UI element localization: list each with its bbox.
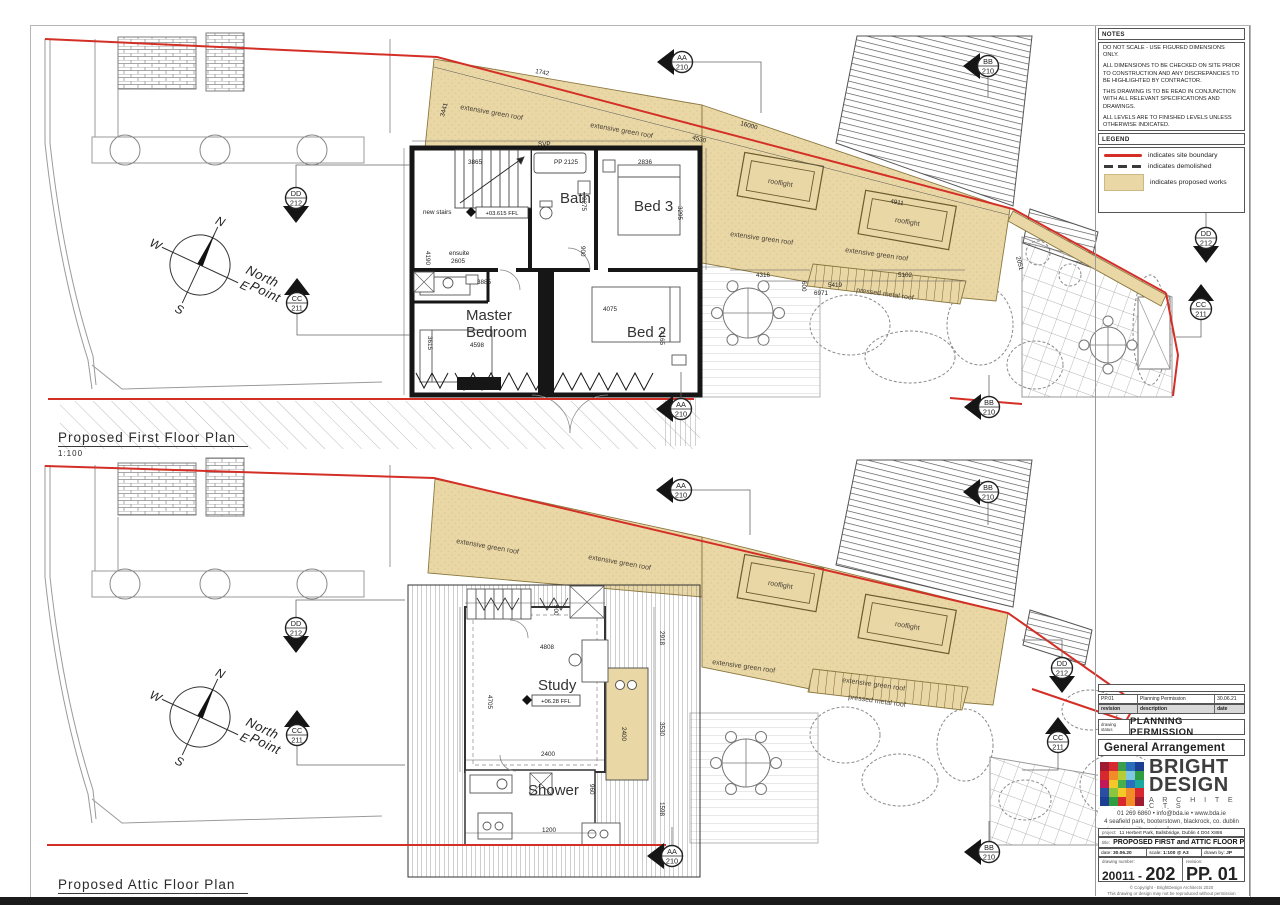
drawing-number-cell: drawing number: 20011 - 202 xyxy=(1099,858,1183,881)
svg-text:212: 212 xyxy=(290,199,302,208)
note-line: ALL DIMENSIONS TO BE CHECKED ON SITE PRI… xyxy=(1103,63,1240,85)
note-line: ALL LEVELS ARE TO FINISHED LEVELS UNLESS… xyxy=(1103,115,1240,130)
plan-scale: 1:100 xyxy=(58,449,248,458)
north-point-compass-attic: N S W E North Point xyxy=(127,644,284,791)
svg-text:4075: 4075 xyxy=(603,306,618,313)
section-marker-bb-bottom: BB210 xyxy=(964,839,1000,865)
svg-text:CC: CC xyxy=(1053,733,1064,742)
first-floor-plan-drawing: +03.615 FFL 3865 SVP PP 2125 2836 2275 3… xyxy=(30,25,1250,455)
section-marker-bb-bottom: BB210 xyxy=(964,394,1000,420)
site-boundary-swatch xyxy=(1104,154,1142,158)
legend-item-proposed: indicates proposed works xyxy=(1099,170,1244,191)
svg-text:210: 210 xyxy=(675,491,687,500)
note-line: THIS DRAWING IS TO BE READ IN CONJUNCTIO… xyxy=(1103,89,1240,111)
note-line: DO NOT SCALE - USE FIGURED DIMENSIONS ON… xyxy=(1103,45,1240,60)
svg-text:AA: AA xyxy=(676,400,686,409)
revision-number: PP. 01 xyxy=(1186,864,1241,885)
svg-text:new stairs: new stairs xyxy=(423,209,451,216)
project-row: project: 11 Herbert Park, Ballsbridge, D… xyxy=(1098,828,1245,837)
revision-date: 30.06.21 xyxy=(1215,695,1244,703)
first-plan-title: Proposed First Floor Plan 1:100 xyxy=(58,429,248,458)
section-marker-dd: DD212 xyxy=(283,618,309,654)
svg-text:210: 210 xyxy=(983,853,995,862)
general-arrangement-box: General Arrangement xyxy=(1098,739,1245,756)
svg-text:3295: 3295 xyxy=(676,206,683,221)
legend-label: indicates proposed works xyxy=(1150,179,1227,186)
legend-header: LEGEND xyxy=(1098,133,1245,145)
svg-text:SVP: SVP xyxy=(538,141,551,148)
north-point-compass: N S W E North Point xyxy=(127,192,284,339)
stairs xyxy=(455,150,531,208)
revision-row: PP.01 Planning Permission 30.06.21 xyxy=(1098,694,1245,704)
revision-empty-row xyxy=(1098,684,1245,692)
svg-text:900: 900 xyxy=(579,246,586,257)
svg-text:Bed 3: Bed 3 xyxy=(634,198,673,215)
revision-id: PP.01 xyxy=(1099,695,1138,703)
svg-text:Study: Study xyxy=(538,677,577,694)
svg-text:3885: 3885 xyxy=(477,279,492,286)
revision-desc: Planning Permission xyxy=(1138,695,1215,703)
drawing-number-prefix: 20011 - xyxy=(1102,869,1145,883)
demolished-swatch xyxy=(1104,165,1142,168)
svg-text:DD: DD xyxy=(291,619,302,628)
section-marker-aa: AA210 xyxy=(656,477,692,503)
svg-text:210: 210 xyxy=(676,63,688,72)
revision-hdr: date xyxy=(1215,705,1244,713)
svg-text:2605: 2605 xyxy=(451,258,466,265)
svg-text:N: N xyxy=(213,213,227,229)
drawing-title: PROPOSED FIRST and ATTIC FLOOR PLANS xyxy=(1113,839,1245,846)
legend-item-demolished: indicates demolished xyxy=(1099,159,1244,170)
notes-body: DO NOT SCALE - USE FIGURED DIMENSIONS ON… xyxy=(1098,42,1245,131)
svg-text:6971: 6971 xyxy=(814,290,829,297)
section-marker-cc: CC211 xyxy=(284,710,310,746)
section-marker-dd: DD212 xyxy=(283,188,309,224)
meta-row: date: 30.06.20 scale: 1:100 @ A3 drawn b… xyxy=(1098,848,1245,857)
svg-text:210: 210 xyxy=(983,408,995,417)
svg-text:ensuite: ensuite xyxy=(449,250,470,257)
svg-text:212: 212 xyxy=(290,629,302,638)
svg-text:210: 210 xyxy=(675,410,687,419)
svg-text:BB: BB xyxy=(984,843,994,852)
firm-name: BRIGHT DESIGN A R C H I T E C T S xyxy=(1149,762,1243,806)
attic-floor-plan-drawing: +06.28 FFL 4808 4705 2400 1200 960 900 3… xyxy=(30,455,1250,905)
drawing-status-box: drawing status PLANNING PERMISSION xyxy=(1098,719,1245,735)
drawing-number: 202 xyxy=(1145,864,1175,884)
svg-text:3865: 3865 xyxy=(468,159,483,166)
notes-header: NOTES xyxy=(1098,28,1245,40)
svg-text:+03.615 FFL: +03.615 FFL xyxy=(485,211,519,217)
legend-label: indicates demolished xyxy=(1148,163,1211,170)
svg-text:1598: 1598 xyxy=(658,802,665,817)
svg-text:211: 211 xyxy=(291,736,303,745)
title-block-panel: NOTES DO NOT SCALE - USE FIGURED DIMENSI… xyxy=(1095,26,1250,896)
svg-text:AA: AA xyxy=(676,481,686,490)
section-marker-aa: AA210 xyxy=(657,49,693,75)
svg-text:211: 211 xyxy=(291,304,303,313)
firm-logo xyxy=(1100,762,1144,806)
svg-text:DD: DD xyxy=(291,189,302,198)
svg-text:2836: 2836 xyxy=(638,159,653,166)
number-row: drawing number: 20011 - 202 revision: PP… xyxy=(1098,857,1245,882)
svg-text:210: 210 xyxy=(666,857,678,866)
svg-text:BB: BB xyxy=(983,483,993,492)
revision-hdr: revision xyxy=(1099,705,1138,713)
svg-text:BB: BB xyxy=(983,57,993,66)
svg-text:AA: AA xyxy=(677,53,687,62)
title-row: title: PROPOSED FIRST and ATTIC FLOOR PL… xyxy=(1098,837,1245,848)
plan-title-text: Proposed First Floor Plan xyxy=(58,430,248,447)
svg-text:5419: 5419 xyxy=(828,282,843,289)
plan-title-text: Proposed Attic Floor Plan xyxy=(58,877,248,894)
section-marker-cc-right: CC211 xyxy=(1045,717,1071,753)
svg-text:5102: 5102 xyxy=(898,272,913,279)
svg-text:2400: 2400 xyxy=(620,727,627,742)
svg-text:W: W xyxy=(147,688,165,706)
svg-text:Shower: Shower xyxy=(528,782,579,799)
status-value: PLANNING PERMISSION xyxy=(1130,720,1244,734)
svg-text:4598: 4598 xyxy=(470,342,485,349)
svg-text:1742: 1742 xyxy=(535,68,551,77)
svg-text:4190: 4190 xyxy=(424,251,431,266)
svg-text:DD: DD xyxy=(1057,659,1068,668)
svg-text:210: 210 xyxy=(982,493,994,502)
svg-text:CC: CC xyxy=(292,726,303,735)
site-context xyxy=(45,33,390,389)
legend-body: indicates site boundary indicates demoli… xyxy=(1098,147,1245,213)
svg-text:W: W xyxy=(147,236,165,254)
svg-text:Bath: Bath xyxy=(560,190,591,207)
project-value: 11 Herbert Park, Ballsbridge, Dublin 4 D… xyxy=(1119,831,1222,836)
svg-text:900: 900 xyxy=(552,605,559,616)
svg-text:210: 210 xyxy=(982,67,994,76)
svg-text:212: 212 xyxy=(1056,669,1068,678)
svg-text:1200: 1200 xyxy=(542,827,557,834)
svg-text:N: N xyxy=(213,665,227,681)
svg-text:CC: CC xyxy=(292,294,303,303)
svg-text:S: S xyxy=(173,753,186,769)
revision-cell: revision: PP. 01 xyxy=(1183,858,1244,881)
svg-text:S: S xyxy=(173,301,186,317)
svg-text:AA: AA xyxy=(667,847,677,856)
site-context-attic xyxy=(45,458,390,823)
svg-text:+06.28 FFL: +06.28 FFL xyxy=(541,699,572,705)
svg-text:Master: Master xyxy=(466,307,512,324)
svg-text:600: 600 xyxy=(800,281,807,292)
page-bottom-strip xyxy=(0,897,1280,905)
revision-hdr: description xyxy=(1138,705,1215,713)
svg-text:4316: 4316 xyxy=(756,272,771,279)
svg-text:2918: 2918 xyxy=(658,631,665,646)
svg-text:3530: 3530 xyxy=(658,722,665,737)
svg-text:211: 211 xyxy=(1052,743,1064,752)
firm-logo-row: BRIGHT DESIGN A R C H I T E C T S xyxy=(1098,760,1245,808)
section-marker-cc: CC211 xyxy=(284,278,310,314)
svg-text:3615: 3615 xyxy=(426,336,433,351)
svg-text:4165: 4165 xyxy=(658,331,665,346)
legend-item-boundary: indicates site boundary xyxy=(1099,148,1244,159)
svg-text:2400: 2400 xyxy=(541,751,556,758)
svg-text:4808: 4808 xyxy=(540,644,555,651)
svg-text:960: 960 xyxy=(588,784,595,795)
revision-header-row: revision description date xyxy=(1098,704,1245,714)
section-marker-dd-right: DD212 xyxy=(1049,658,1075,694)
status-label: drawing status xyxy=(1099,720,1130,734)
svg-text:BB: BB xyxy=(984,398,994,407)
svg-text:PP 2125: PP 2125 xyxy=(554,159,579,166)
svg-text:4705: 4705 xyxy=(486,695,493,710)
legend-label: indicates site boundary xyxy=(1148,152,1218,159)
copyright: © Copyright - BrightDesign Architects 20… xyxy=(1098,884,1245,896)
firm-address: 4 seafield park, booterstown, blackrock,… xyxy=(1098,817,1245,826)
proposed-works-swatch xyxy=(1104,174,1144,191)
house-first-floor xyxy=(412,148,700,433)
svg-text:Bedroom: Bedroom xyxy=(466,324,527,341)
